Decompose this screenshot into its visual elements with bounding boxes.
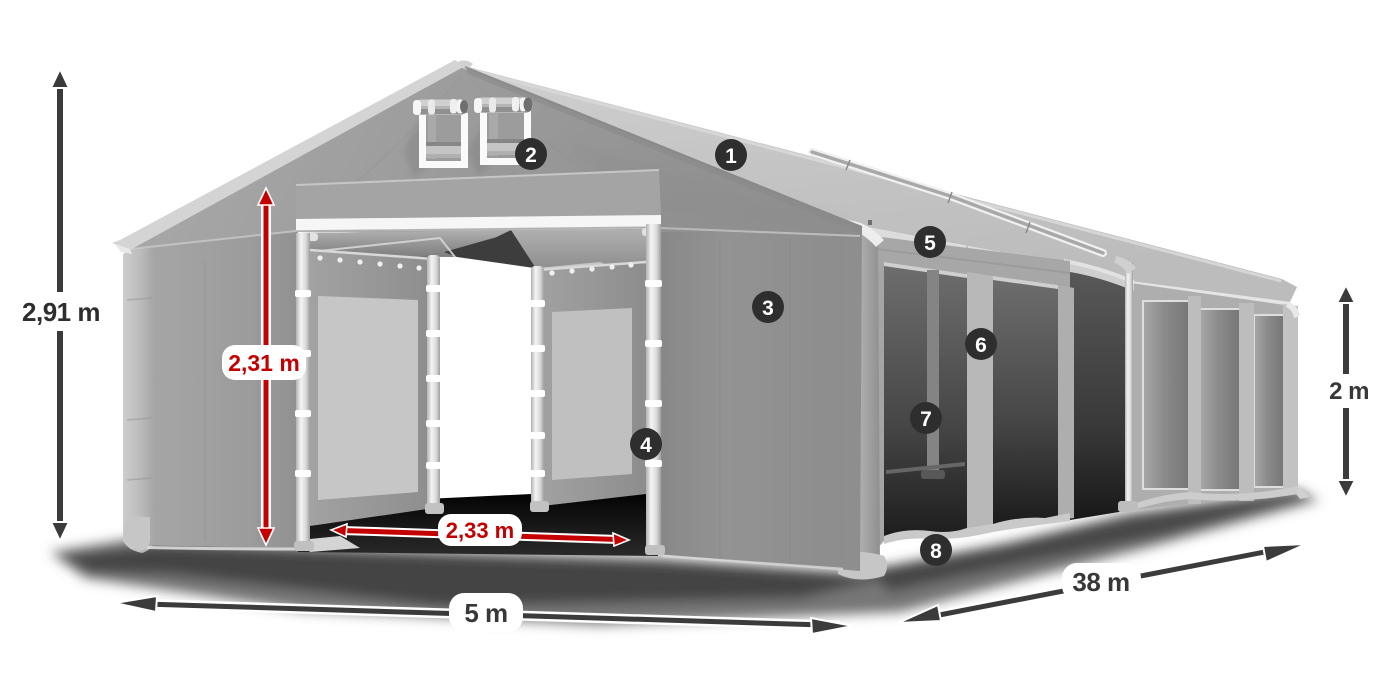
svg-text:5: 5 <box>924 232 936 255</box>
svg-text:1: 1 <box>725 145 737 168</box>
svg-text:6: 6 <box>975 334 987 357</box>
svg-text:2,33 m: 2,33 m <box>446 518 515 543</box>
svg-text:8: 8 <box>930 540 942 563</box>
svg-text:3: 3 <box>762 297 774 320</box>
svg-text:2: 2 <box>525 144 537 167</box>
svg-text:4: 4 <box>640 434 652 457</box>
svg-text:2,31 m: 2,31 m <box>228 350 300 376</box>
svg-text:2,91 m: 2,91 m <box>22 297 100 327</box>
svg-text:2 m: 2 m <box>1329 378 1369 405</box>
svg-text:7: 7 <box>920 408 932 431</box>
svg-text:5 m: 5 m <box>464 598 507 628</box>
svg-text:38 m: 38 m <box>1072 567 1129 597</box>
